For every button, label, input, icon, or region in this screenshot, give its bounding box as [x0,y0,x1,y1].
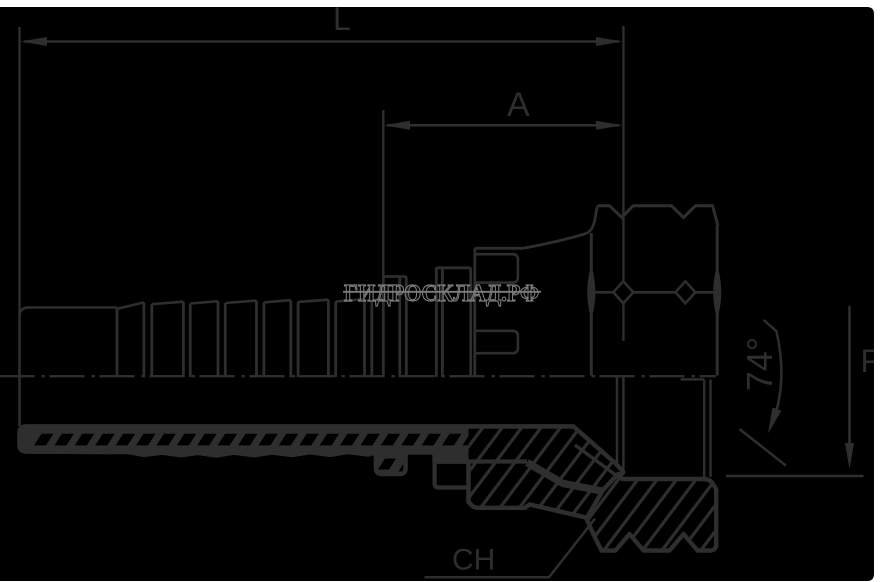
svg-text:ГИДРОСКЛАД.РФ: ГИДРОСКЛАД.РФ [344,280,539,307]
svg-text:CH: CH [452,544,495,577]
svg-text:74°: 74° [739,337,780,391]
svg-text:A: A [507,86,530,124]
